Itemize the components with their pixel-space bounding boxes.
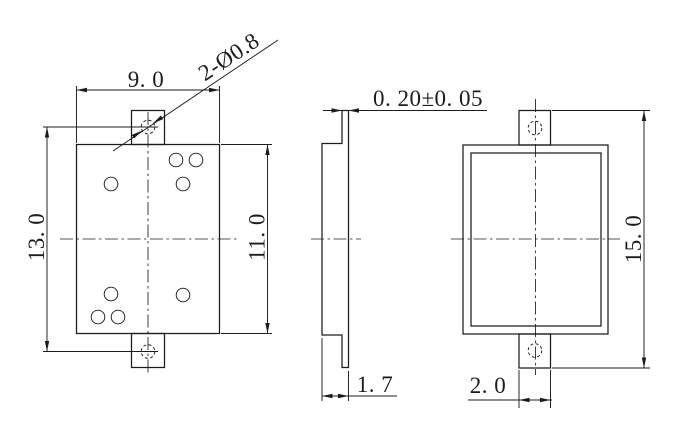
arrowhead <box>77 88 88 92</box>
arrowhead <box>332 108 343 112</box>
front-solder-dot <box>104 177 118 191</box>
arrowhead <box>642 358 646 369</box>
side-view <box>311 111 487 402</box>
back-bottom-tab <box>519 334 551 368</box>
arrowhead <box>349 108 360 112</box>
front-solder-dot <box>176 177 190 191</box>
arrowhead <box>45 341 49 352</box>
dim-label-front-body-height: 11. 0 <box>245 213 270 261</box>
arrowhead <box>540 398 551 402</box>
front-solder-dot <box>189 153 203 167</box>
dimension-arrowheads <box>45 88 646 402</box>
front-solder-dot <box>111 310 125 324</box>
dim-label-lid-thickness: 0. 20±0. 05 <box>373 86 483 111</box>
arrowhead <box>45 127 49 138</box>
dim-label-front-overall-height: 13. 0 <box>24 213 49 262</box>
dim-label-back-height: 15. 0 <box>621 215 646 264</box>
dim-label-front-width: 9. 0 <box>128 67 165 92</box>
back-top-tab <box>519 111 551 146</box>
dim-label-side-thickness: 1. 7 <box>357 372 394 397</box>
dimension-labels: 9. 0 13. 0 11. 0 2-Ø0.8 0. 20±0. 05 1. 7… <box>24 28 646 398</box>
arrowhead <box>338 394 349 398</box>
dim-label-tab-width: 2. 0 <box>470 373 507 398</box>
three-view-drawing: 9. 0 13. 0 11. 0 2-Ø0.8 0. 20±0. 05 1. 7… <box>0 0 673 448</box>
front-solder-dot <box>176 288 190 302</box>
arrowhead <box>642 111 646 122</box>
arrowhead <box>265 145 269 156</box>
front-solder-dot <box>91 310 105 324</box>
front-solder-dot <box>104 287 118 301</box>
front-solder-dot <box>169 153 183 167</box>
back-inner-outline <box>471 153 601 326</box>
back-top-tab-hole <box>528 121 542 135</box>
arrowhead <box>209 88 220 92</box>
technical-drawing-canvas: 9. 0 13. 0 11. 0 2-Ø0.8 0. 20±0. 05 1. 7… <box>0 0 673 448</box>
arrowhead <box>322 394 333 398</box>
arrowhead <box>132 129 143 138</box>
arrowhead <box>519 398 530 402</box>
arrowhead <box>265 323 269 334</box>
back-bottom-tab-hole <box>528 344 542 358</box>
